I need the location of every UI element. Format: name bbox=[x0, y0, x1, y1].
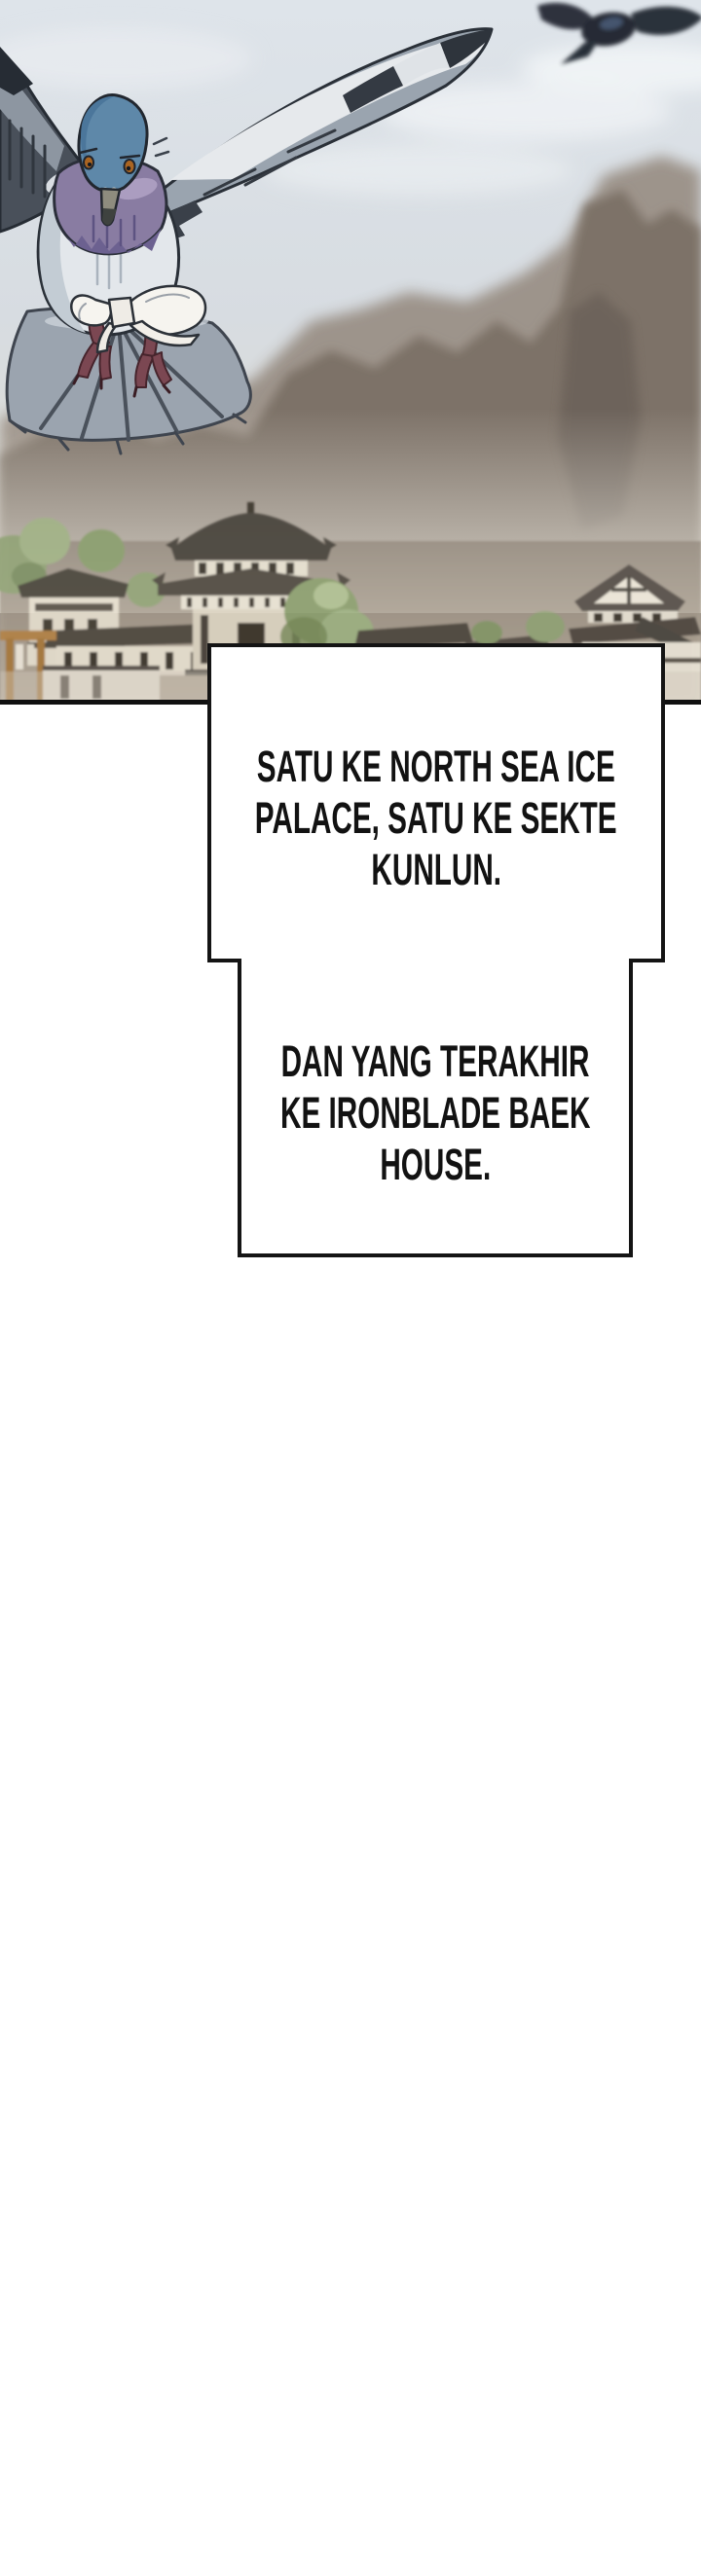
bubble2-line2: KE IRONBLADE BAEK bbox=[280, 1087, 590, 1139]
bubble1-line1: SATU KE NORTH SEA ICE bbox=[257, 741, 615, 792]
comic-panel bbox=[0, 0, 701, 705]
speech-bubble-text-1: SATU KE NORTH SEA ICE PALACE, SATU KE SE… bbox=[209, 650, 663, 975]
bubble2-line1: DAN YANG TERAKHIR bbox=[281, 1035, 590, 1087]
speech-bubble-text-2: DAN YANG TERAKHIR KE IRONBLADE BAEK HOUS… bbox=[240, 965, 631, 1260]
bubble2-line3: HOUSE. bbox=[380, 1139, 491, 1190]
bubble1-line3: KUNLUN. bbox=[371, 844, 501, 895]
scene-illustration bbox=[0, 0, 701, 705]
bubble1-line2: PALACE, SATU KE SEKTE bbox=[255, 792, 617, 844]
webtoon-page: SATU KE NORTH SEA ICE PALACE, SATU KE SE… bbox=[0, 0, 701, 2576]
